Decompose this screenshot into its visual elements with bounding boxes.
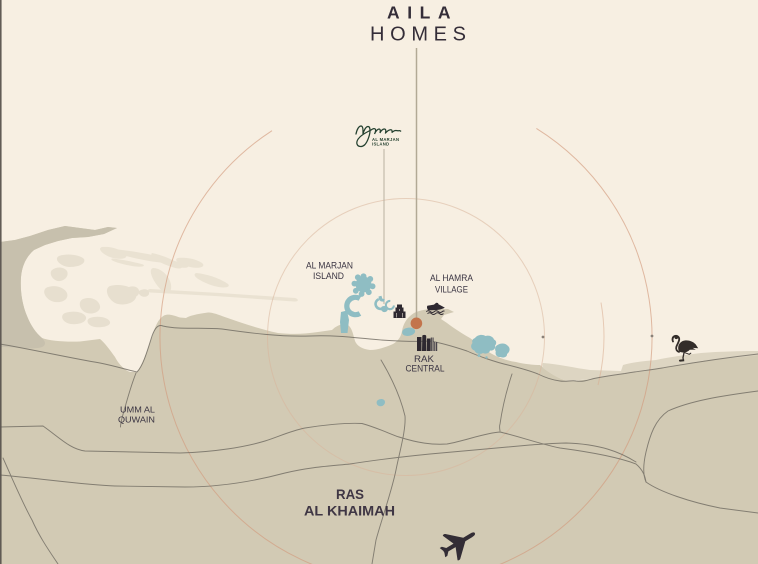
svg-text:AL HAMRA: AL HAMRA [430, 273, 474, 283]
svg-text:HOMES: HOMES [370, 24, 471, 46]
svg-text:QUWAIN: QUWAIN [118, 415, 155, 425]
svg-text:AL KHAIMAH: AL KHAIMAH [304, 504, 395, 519]
svg-text:CENTRAL: CENTRAL [406, 364, 445, 374]
svg-text:UMM AL: UMM AL [120, 405, 155, 415]
svg-text:AILA: AILA [387, 3, 455, 23]
svg-text:VILLAGE: VILLAGE [435, 285, 468, 295]
svg-text:RAS: RAS [336, 487, 364, 502]
svg-text:ISLAND: ISLAND [372, 142, 389, 147]
svg-text:AL MARJAN: AL MARJAN [306, 261, 353, 271]
svg-text:ISLAND: ISLAND [313, 271, 344, 281]
svg-text:RAK: RAK [414, 354, 435, 364]
